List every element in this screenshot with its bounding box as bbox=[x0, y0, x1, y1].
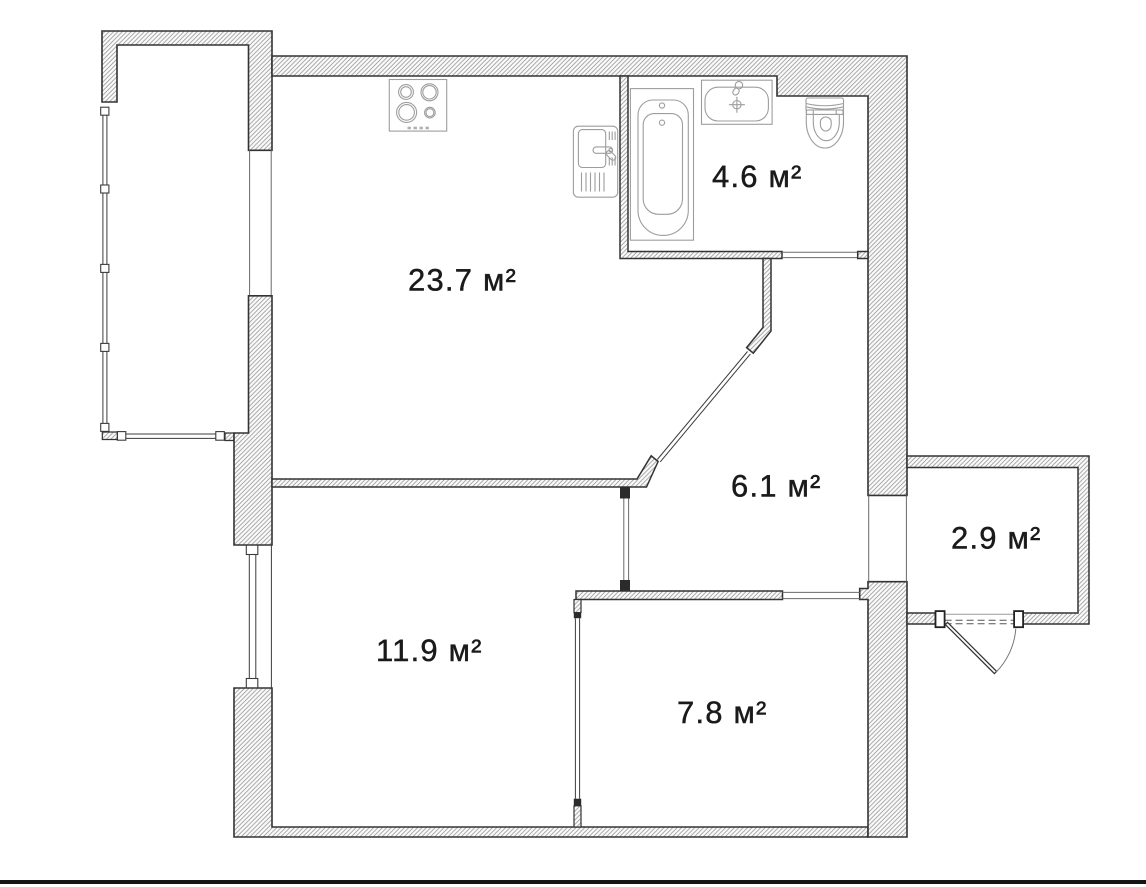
svg-text:23.7 м²: 23.7 м² bbox=[408, 263, 517, 298]
svg-text:11.9 м²: 11.9 м² bbox=[376, 633, 483, 668]
svg-text:6.1 м²: 6.1 м² bbox=[731, 469, 822, 504]
svg-text:7.8 м²: 7.8 м² bbox=[677, 695, 768, 730]
svg-text:4.6 м²: 4.6 м² bbox=[712, 159, 803, 194]
svg-text:2.9 м²: 2.9 м² bbox=[951, 521, 1042, 556]
